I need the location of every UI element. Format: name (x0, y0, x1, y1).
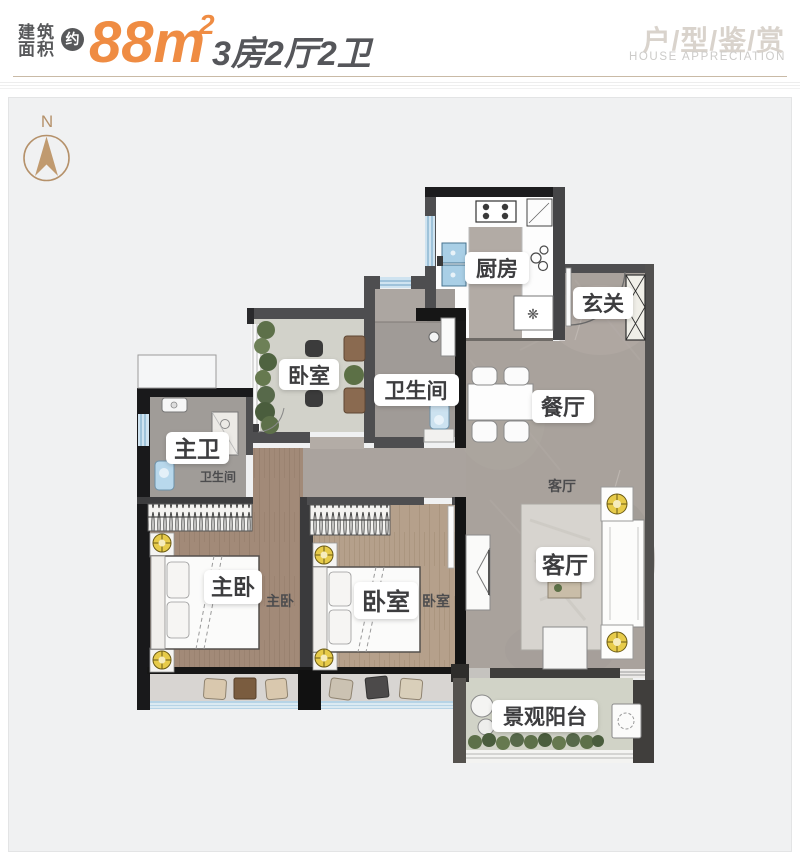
svg-text:卧室: 卧室 (362, 588, 410, 616)
svg-text:主卧: 主卧 (266, 593, 294, 609)
svg-text:N: N (41, 112, 53, 131)
svg-text:客厅: 客厅 (542, 552, 588, 578)
svg-text:玄关: 玄关 (582, 292, 624, 316)
svg-text:餐厅: 餐厅 (541, 395, 585, 420)
svg-text:景观阳台: 景观阳台 (503, 705, 587, 729)
svg-text:厨房: 厨房 (476, 257, 518, 281)
svg-text:卫生间: 卫生间 (200, 469, 236, 484)
svg-text:主卫: 主卫 (174, 436, 220, 462)
svg-text:客厅: 客厅 (547, 478, 576, 494)
svg-text:卫生间: 卫生间 (385, 379, 448, 403)
svg-text:卧室: 卧室 (422, 593, 450, 609)
svg-text:❋: ❋ (527, 306, 539, 322)
svg-text:主卧: 主卧 (211, 575, 255, 600)
svg-text:卧室: 卧室 (288, 364, 330, 388)
